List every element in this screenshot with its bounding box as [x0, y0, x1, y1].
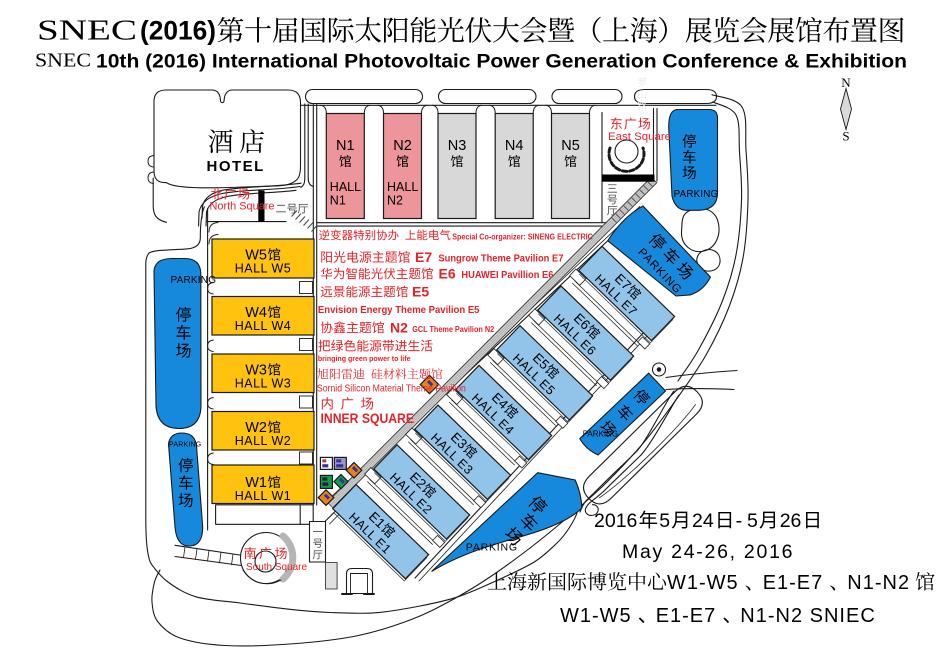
svg-text:South Square: South Square: [246, 561, 307, 573]
svg-text:HALL W3: HALL W3: [235, 376, 292, 390]
svg-text:E1-E7: E1-E7: [656, 605, 717, 627]
svg-text:E6: E6: [439, 265, 456, 281]
svg-text:HALL W1: HALL W1: [235, 489, 292, 503]
svg-text:N: N: [841, 75, 851, 90]
svg-text:N2: N2: [387, 194, 403, 208]
svg-text:HALL W2: HALL W2: [235, 434, 292, 448]
svg-text:PARKING: PARKING: [171, 275, 217, 286]
svg-text:N4: N4: [505, 138, 524, 154]
svg-text:HALL: HALL: [387, 180, 418, 194]
svg-text:HALL W4: HALL W4: [235, 319, 292, 333]
svg-text:5: 5: [659, 510, 670, 532]
svg-text:SNEC: SNEC: [35, 51, 91, 72]
svg-text:PARKING: PARKING: [583, 430, 618, 439]
svg-text:2016: 2016: [594, 510, 637, 532]
svg-text:S: S: [842, 129, 849, 144]
svg-text:Envision Energy Theme Pavilion: Envision Energy Theme Pavilion E5: [318, 304, 480, 316]
svg-text:PARKING: PARKING: [169, 442, 201, 449]
svg-text:N1: N1: [336, 138, 355, 154]
svg-text:N1: N1: [330, 194, 346, 208]
svg-text:N1-N2: N1-N2: [847, 572, 910, 594]
svg-text:East Square: East Square: [608, 131, 671, 143]
svg-text:HALL: HALL: [330, 180, 361, 194]
svg-text:N2: N2: [393, 138, 412, 154]
svg-text:N5: N5: [561, 138, 580, 154]
svg-text:W1-W5: W1-W5: [667, 572, 739, 594]
svg-text:24: 24: [692, 510, 714, 532]
svg-text:Sornid Silicon Material Theme: Sornid Silicon Material Theme Pavilion: [317, 383, 466, 395]
svg-text:N1-N2 SNIEC: N1-N2 SNIEC: [740, 605, 875, 627]
svg-text:May 24-26, 2016: May 24-26, 2016: [622, 541, 794, 563]
svg-text:10th (2016) International Phot: 10th (2016) International Photovoltaic P…: [96, 52, 907, 73]
svg-text:HOTEL: HOTEL: [207, 158, 265, 175]
svg-text:5: 5: [747, 510, 758, 532]
svg-text:E7: E7: [415, 249, 432, 265]
svg-text:(2016): (2016): [140, 16, 216, 46]
svg-text:PARKING: PARKING: [674, 189, 719, 200]
svg-text:SNEC: SNEC: [37, 15, 137, 47]
svg-text:E1-E7: E1-E7: [763, 572, 824, 594]
svg-text:North Square: North Square: [210, 201, 275, 213]
svg-text:Sungrow Theme Pavilion E7: Sungrow Theme Pavilion E7: [438, 254, 563, 265]
svg-text:INNER SQUARE: INNER SQUARE: [321, 411, 415, 426]
svg-text:HALL W5: HALL W5: [235, 261, 292, 275]
svg-text:N2: N2: [390, 319, 408, 335]
svg-text:HUAWEI Pavillion E6: HUAWEI Pavillion E6: [461, 270, 553, 281]
svg-text:N3: N3: [448, 138, 467, 154]
svg-text:-: -: [736, 510, 743, 532]
svg-text:W1-W5: W1-W5: [560, 605, 632, 627]
svg-text:PARKING: PARKING: [466, 542, 518, 554]
svg-text:Special Co-organizer: SINENG E: Special Co-organizer: SINENG ELECTRIC: [452, 232, 593, 241]
svg-text:26: 26: [780, 510, 802, 532]
svg-text:GCL Theme Pavilion N2: GCL Theme Pavilion N2: [412, 325, 494, 334]
svg-text:bringing green power to life: bringing green power to life: [318, 354, 411, 363]
svg-text:E5: E5: [412, 283, 429, 299]
